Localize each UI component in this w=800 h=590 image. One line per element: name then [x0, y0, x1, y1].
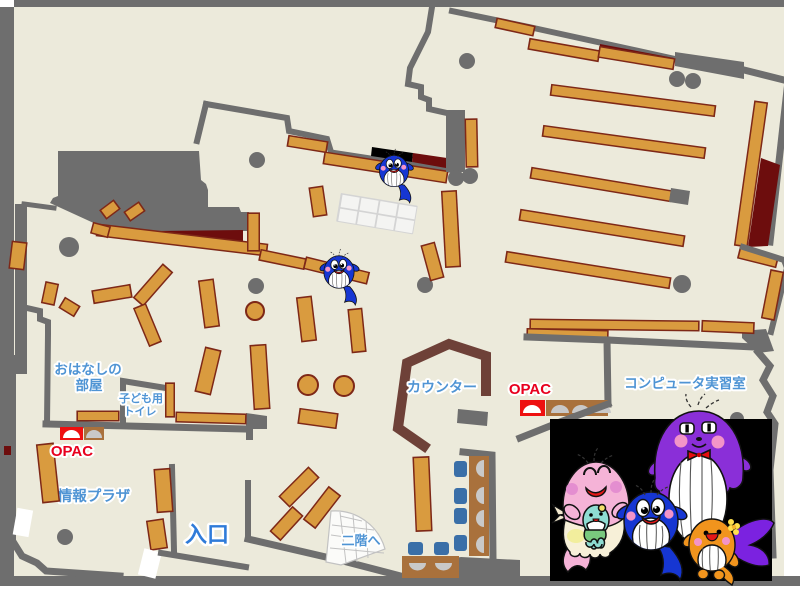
- svg-text:OPAC: OPAC: [509, 381, 551, 398]
- svg-text:子ども用: 子ども用: [119, 392, 163, 405]
- svg-text:OPAC: OPAC: [51, 443, 93, 460]
- svg-text:情報プラザ: 情報プラザ: [58, 487, 131, 505]
- svg-text:部屋: 部屋: [76, 377, 103, 393]
- svg-text:おはなしの: おはなしの: [54, 362, 122, 377]
- svg-text:コンピュータ実習室: コンピュータ実習室: [624, 375, 746, 391]
- svg-text:トイレ: トイレ: [124, 405, 157, 418]
- svg-text:二階へ: 二階へ: [341, 533, 380, 548]
- svg-text:カウンター: カウンター: [407, 379, 477, 395]
- svg-text:入口: 入口: [185, 522, 229, 547]
